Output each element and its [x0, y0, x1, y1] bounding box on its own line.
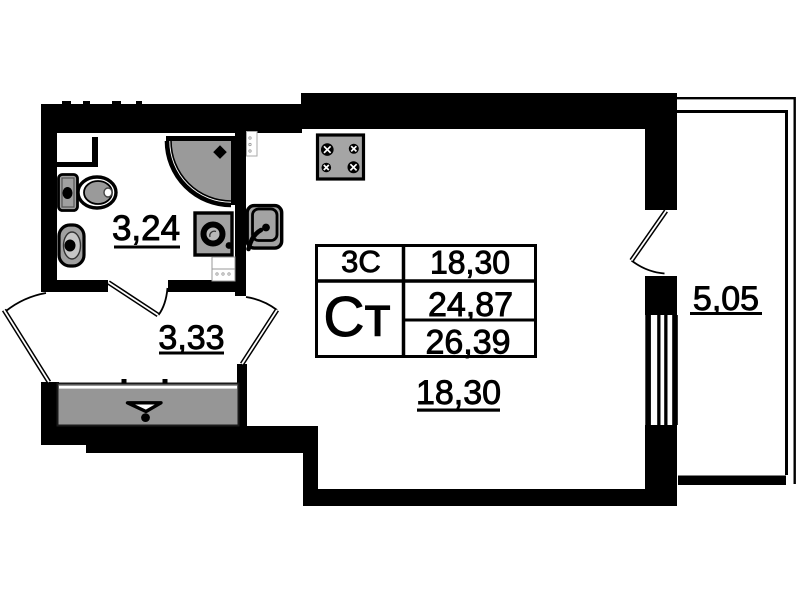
svg-text:24,87: 24,87 — [428, 286, 513, 324]
svg-text:3С: 3С — [341, 244, 381, 279]
svg-text:18,30: 18,30 — [416, 374, 501, 412]
svg-text:3,24: 3,24 — [112, 209, 180, 248]
svg-text:Ст: Ст — [323, 285, 390, 349]
svg-text:18,30: 18,30 — [430, 245, 510, 281]
svg-text:26,39: 26,39 — [425, 324, 510, 362]
svg-text:3,33: 3,33 — [158, 319, 224, 357]
